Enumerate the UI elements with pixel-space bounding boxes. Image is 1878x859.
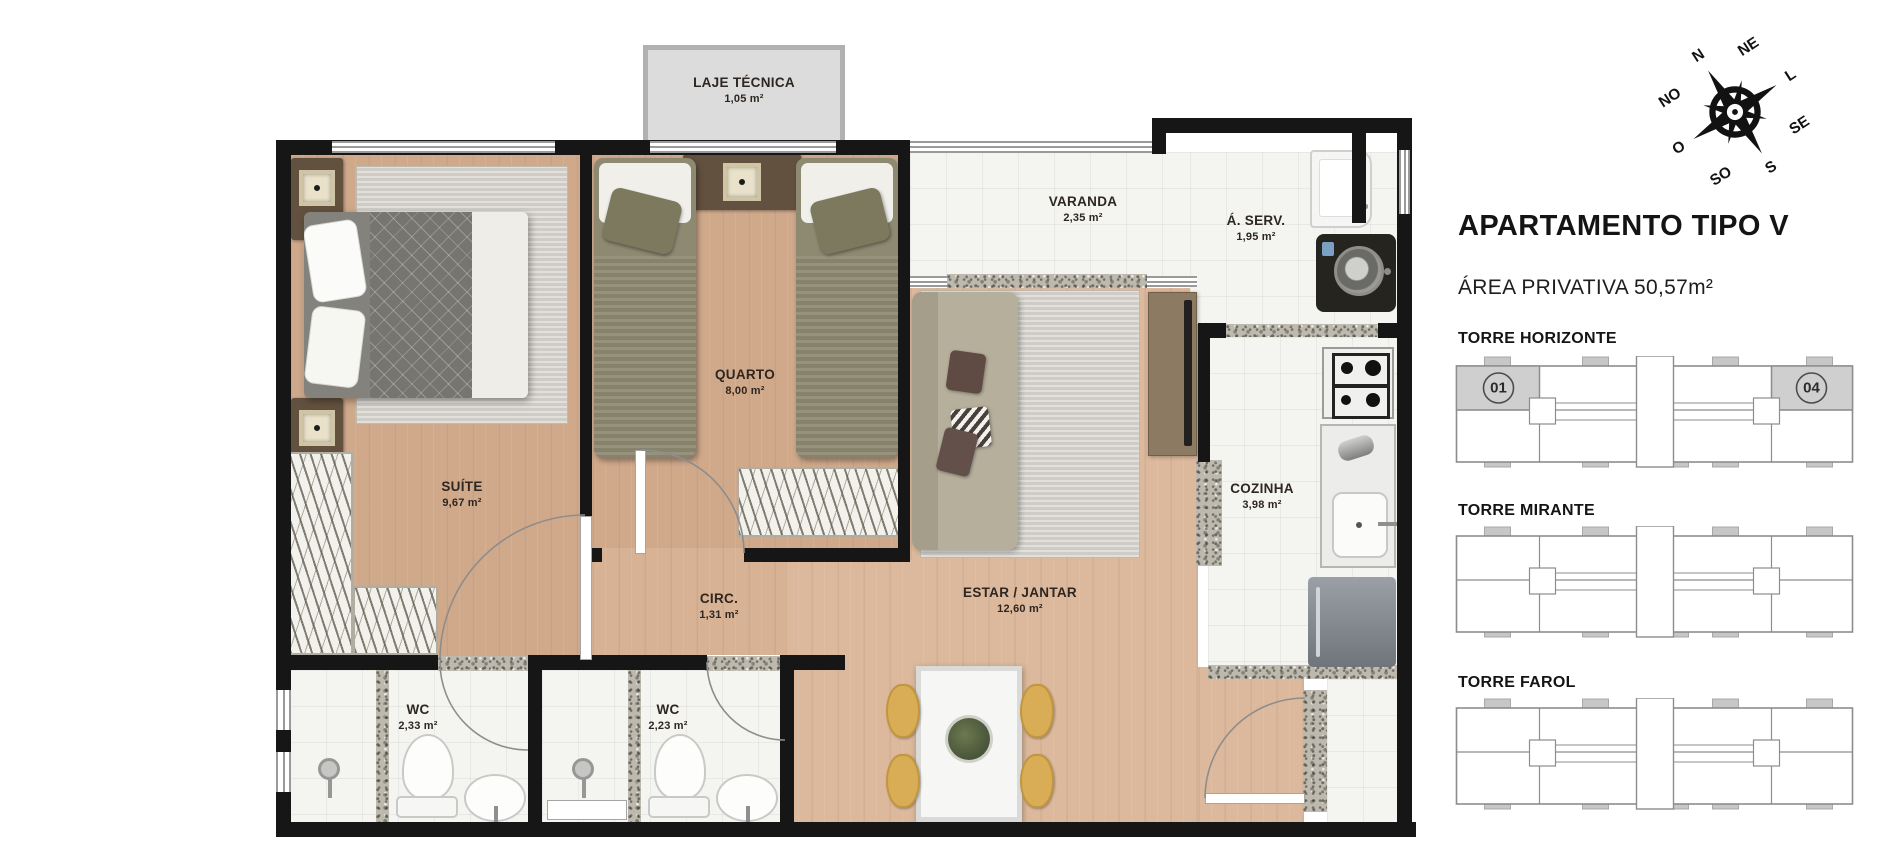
compass-label-o: O: [1669, 137, 1688, 158]
room-label-suite: SUÍTE 9,67 m²: [441, 478, 482, 510]
compass-label-n: N: [1689, 46, 1708, 66]
door-swing-arcs: [0, 0, 1460, 859]
tower-name-mirante: TORRE MIRANTE: [1458, 502, 1595, 520]
compass-label-l: L: [1782, 66, 1799, 85]
room-area: 3,98 m²: [1230, 498, 1294, 512]
room-name: COZINHA: [1230, 481, 1294, 496]
tower-name-horizonte: TORRE HORIZONTE: [1458, 330, 1617, 348]
room-label-wc1: WC 2,33 m²: [398, 701, 437, 733]
room-name: VARANDA: [1049, 194, 1118, 209]
tower-diagram-farol: [1452, 698, 1857, 815]
room-name: WC: [656, 702, 679, 717]
room-label-circ: CIRC. 1,31 m²: [699, 590, 738, 622]
room-name: SUÍTE: [441, 479, 482, 494]
room-name: WC: [406, 702, 429, 717]
room-name: Á. SERV.: [1227, 213, 1286, 228]
private-area-text: ÁREA PRIVATIVA 50,57m²: [1458, 276, 1713, 300]
room-label-aserv: Á. SERV. 1,95 m²: [1227, 212, 1286, 244]
room-label-wc2: WC 2,23 m²: [648, 701, 687, 733]
compass-label-ne: NE: [1735, 34, 1762, 60]
room-label-quarto: QUARTO 8,00 m²: [715, 366, 775, 398]
tower-name-farol: TORRE FAROL: [1458, 674, 1576, 692]
tower-diagram-mirante: [1452, 526, 1857, 643]
compass-rose: N NE L SE S SO O NO: [1645, 22, 1825, 202]
room-label-cozinha: COZINHA 3,98 m²: [1230, 480, 1294, 512]
info-panel: N NE L SE S SO O NO APARTAMENTO TIPO V Á…: [1440, 0, 1878, 859]
compass-label-no: NO: [1656, 84, 1685, 111]
floorplan-page: LAJE TÉCNICA 1,05 m²: [0, 0, 1878, 859]
page-title: APARTAMENTO TIPO V: [1458, 210, 1789, 243]
unit-number-04: 04: [1803, 380, 1820, 397]
unit-number-01: 01: [1490, 380, 1507, 397]
room-area: 12,60 m²: [963, 602, 1077, 616]
room-area: 1,95 m²: [1227, 230, 1286, 244]
room-area: 2,35 m²: [1049, 211, 1118, 225]
tower-diagram-horizonte: 01 04: [1452, 356, 1857, 473]
room-area: 2,23 m²: [648, 719, 687, 733]
compass-label-se: SE: [1786, 113, 1812, 138]
compass-label-s: S: [1762, 158, 1780, 178]
room-area: 8,00 m²: [715, 384, 775, 398]
room-name: ESTAR / JANTAR: [963, 585, 1077, 600]
room-area: 1,31 m²: [699, 608, 738, 622]
room-name: QUARTO: [715, 367, 775, 382]
room-area: 2,33 m²: [398, 719, 437, 733]
room-area: 9,67 m²: [441, 496, 482, 510]
floorplan: LAJE TÉCNICA 1,05 m²: [0, 0, 1460, 859]
room-label-varanda: VARANDA 2,35 m²: [1049, 193, 1118, 225]
compass-graphic: N NE L SE S SO O NO: [1645, 22, 1825, 202]
room-name: CIRC.: [700, 591, 738, 606]
compass-label-so: SO: [1707, 163, 1735, 189]
room-label-estar: ESTAR / JANTAR 12,60 m²: [963, 584, 1077, 616]
